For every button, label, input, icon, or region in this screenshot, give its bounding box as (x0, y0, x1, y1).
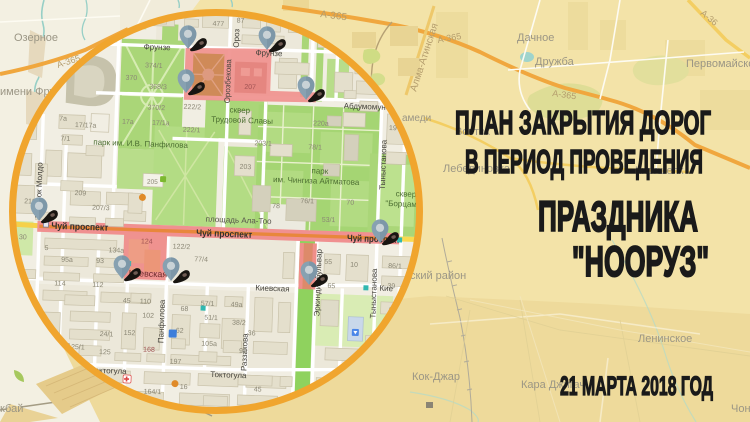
svg-text:209: 209 (74, 190, 86, 197)
svg-text:В ПЕРИОД ПРОВЕДЕНИЯ: В ПЕРИОД ПРОВЕДЕНИЯ (465, 143, 703, 180)
svg-text:амеди: амеди (402, 113, 431, 124)
svg-text:68: 68 (180, 306, 188, 313)
svg-text:78: 78 (272, 203, 280, 210)
svg-text:70: 70 (346, 200, 354, 207)
svg-text:205: 205 (147, 179, 158, 186)
svg-text:152: 152 (124, 330, 136, 337)
svg-text:Чуй проспект: Чуй проспект (196, 228, 253, 241)
svg-text:7а: 7а (59, 115, 67, 122)
svg-text:222/2: 222/2 (183, 104, 201, 112)
svg-text:203/1: 203/1 (254, 140, 272, 148)
svg-text:477: 477 (212, 21, 224, 28)
svg-text:39: 39 (387, 283, 395, 290)
svg-text:парк: парк (311, 166, 329, 176)
svg-text:36: 36 (248, 330, 256, 337)
svg-text:53/1: 53/1 (322, 217, 336, 224)
svg-text:Тыныстанова: Тыныстанова (378, 139, 389, 190)
svg-text:Чон: Чон (731, 403, 750, 415)
svg-text:207/3: 207/3 (92, 205, 110, 213)
svg-text:168: 168 (143, 347, 155, 354)
svg-text:197: 197 (170, 358, 182, 365)
svg-text:112: 112 (92, 282, 104, 289)
svg-text:122/2: 122/2 (173, 244, 191, 252)
svg-text:87: 87 (237, 18, 245, 25)
svg-text:24/1: 24/1 (99, 331, 113, 338)
svg-text:30: 30 (19, 234, 27, 241)
svg-text:ПРАЗДНИКА: ПРАЗДНИКА (538, 193, 698, 241)
svg-text:374/1: 374/1 (145, 62, 163, 70)
svg-text:сквер: сквер (229, 105, 250, 115)
svg-text:77/4: 77/4 (194, 256, 208, 263)
svg-text:102: 102 (142, 312, 154, 319)
svg-text:95а: 95а (61, 257, 73, 264)
svg-text:Озерное: Озерное (14, 32, 58, 44)
svg-text:сквер: сквер (396, 189, 417, 199)
svg-text:370/2: 370/2 (147, 105, 165, 113)
svg-text:114: 114 (54, 280, 66, 287)
svg-text:38/2: 38/2 (232, 320, 246, 327)
svg-text:5: 5 (44, 245, 48, 252)
svg-text:203: 203 (239, 164, 251, 171)
svg-text:Первомайско: Первомайско (686, 58, 750, 70)
svg-text:Чуй проспект: Чуй проспект (51, 221, 109, 234)
svg-text:220а: 220а (313, 120, 329, 128)
svg-text:ский район: ский район (410, 270, 466, 282)
svg-text:Ленинское: Ленинское (638, 333, 692, 345)
svg-text:45: 45 (123, 298, 131, 305)
svg-text:Дачное: Дачное (517, 32, 554, 44)
svg-text:76/1: 76/1 (300, 198, 314, 205)
svg-text:21 МАРТА 2018 ГОД: 21 МАРТА 2018 ГОД (560, 371, 713, 401)
svg-text:65: 65 (327, 283, 335, 290)
svg-text:207: 207 (244, 84, 256, 91)
svg-text:134а: 134а (108, 247, 124, 255)
svg-text:45: 45 (254, 386, 262, 393)
svg-text:105а: 105а (201, 341, 217, 349)
svg-text:Ороз: Ороз (232, 28, 242, 47)
svg-text:Орозбекова: Орозбекова (223, 58, 234, 103)
svg-text:125: 125 (99, 349, 111, 356)
svg-text:86/1: 86/1 (388, 263, 402, 270)
svg-text:78/1: 78/1 (308, 144, 322, 151)
svg-text:Дружба: Дружба (535, 56, 575, 68)
svg-text:370: 370 (125, 75, 137, 82)
svg-text:110: 110 (140, 298, 152, 305)
svg-text:124: 124 (141, 238, 153, 245)
svg-text:Фрунзе: Фрунзе (144, 42, 172, 52)
svg-text:17а: 17а (122, 119, 134, 126)
svg-text:7/1: 7/1 (60, 136, 70, 143)
svg-text:17/17а: 17/17а (75, 122, 97, 130)
svg-text:Тыныстанова: Тыныстанова (368, 268, 379, 319)
svg-text:368/3: 368/3 (149, 84, 167, 92)
svg-text:Панфилова: Панфилова (156, 299, 167, 343)
svg-text:222/1: 222/1 (183, 127, 201, 135)
svg-text:93: 93 (96, 258, 104, 265)
svg-text:Кок-Джар: Кок-Джар (412, 371, 460, 383)
svg-text:16: 16 (180, 384, 188, 391)
svg-text:кбай: кбай (0, 403, 23, 415)
svg-text:ПЛАН ЗАКРЫТИЯ ДОРОГ: ПЛАН ЗАКРЫТИЯ ДОРОГ (455, 104, 711, 141)
svg-text:51/1: 51/1 (204, 315, 218, 322)
svg-text:"НООРУЗ": "НООРУЗ" (572, 238, 709, 286)
svg-text:62: 62 (176, 328, 184, 335)
svg-text:17/1а: 17/1а (152, 120, 170, 128)
svg-text:10: 10 (350, 262, 358, 269)
svg-text:55: 55 (324, 259, 332, 266)
svg-text:Киевская: Киевская (255, 283, 289, 293)
svg-text:49а: 49а (231, 302, 243, 309)
svg-text:99: 99 (239, 348, 247, 355)
